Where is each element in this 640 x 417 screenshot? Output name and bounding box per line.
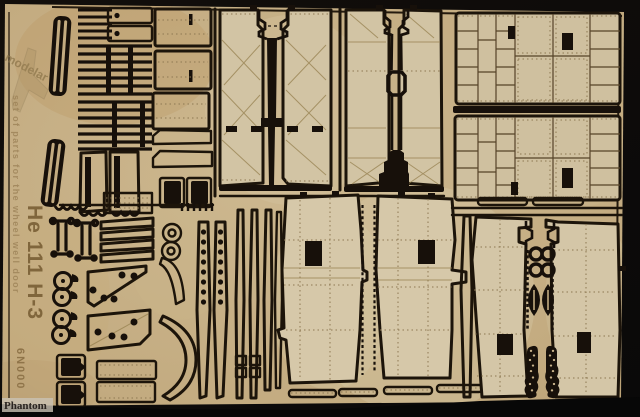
svg-text:6N000: 6N000 (14, 348, 26, 390)
svg-text:He 111 H-3: He 111 H-3 (23, 205, 46, 320)
svg-text:Phantom: Phantom (4, 400, 47, 412)
svg-text:set of parts for the wheel wel: set of parts for the wheel well door (11, 95, 21, 294)
